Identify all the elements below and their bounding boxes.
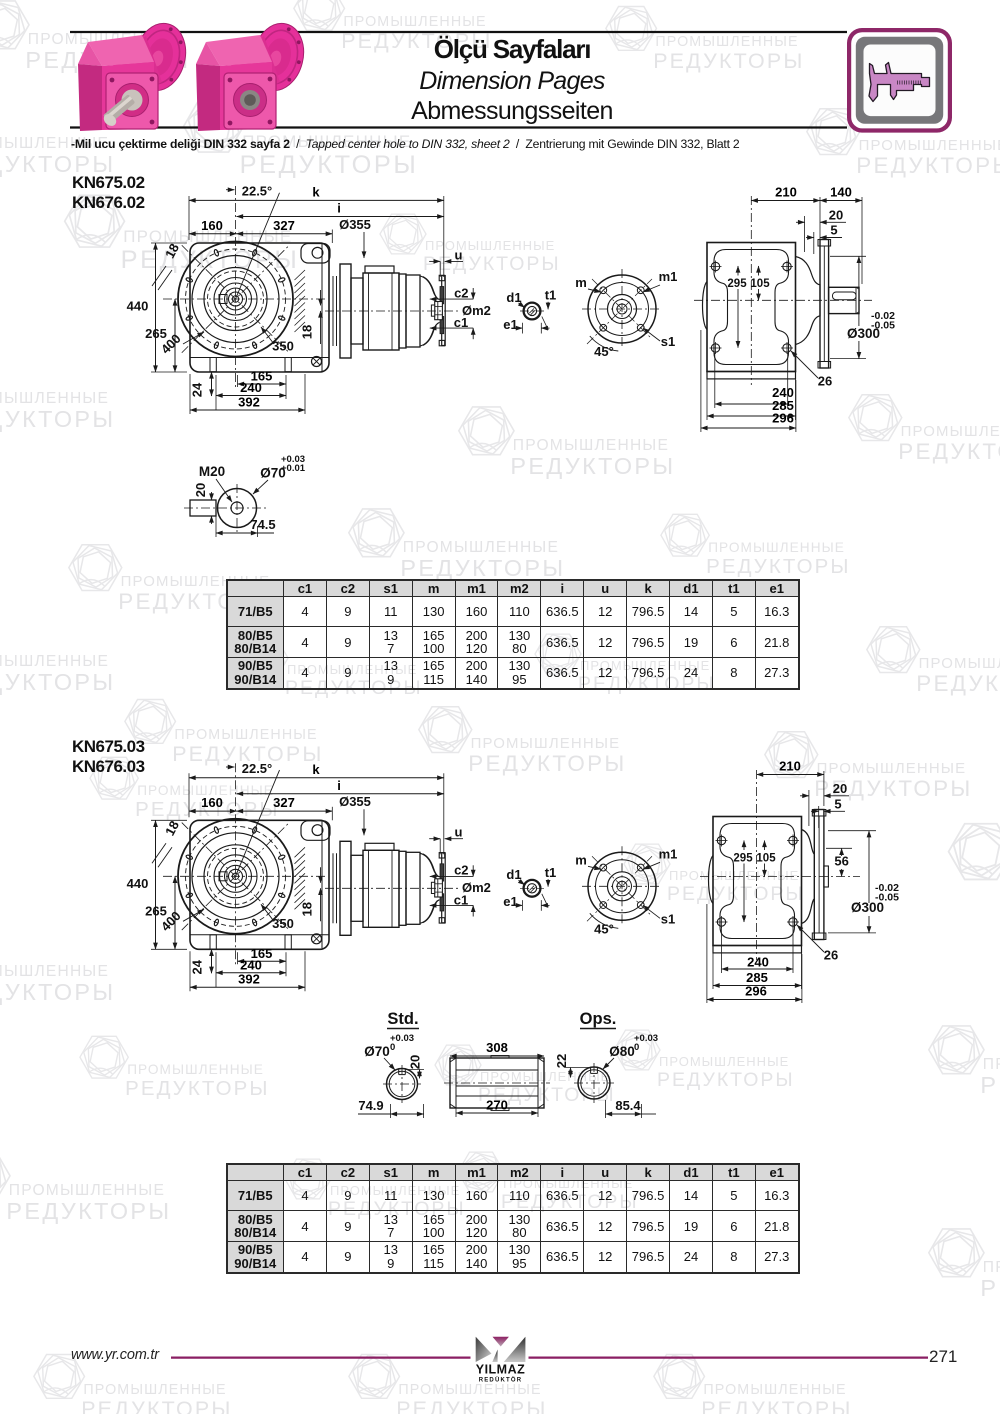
svg-text:296: 296 [745,984,767,999]
svg-text:ПРОМЫШЛЕННЫЕ: ПРОМЫШЛЕННЫЕ [403,539,559,556]
svg-text:Ops.: Ops. [580,1010,617,1028]
svg-text:m: m [575,275,587,290]
svg-text:РЕДУКТОРЫ: РЕДУКТОРЫ [980,1072,1000,1098]
svg-text:РЕДУКТОРЫ: РЕДУКТОРЫ [121,246,300,274]
svg-text:ПРОМЫШЛЕННЫЕ: ПРОМЫШЛЕННЫЕ [127,1062,264,1077]
svg-text:440: 440 [127,299,149,314]
svg-text:74.5: 74.5 [250,517,275,532]
svg-text:ПРОМЫШЛЕННЫЕ: ПРОМЫШЛЕННЫЕ [9,1182,165,1199]
svg-text:105: 105 [750,278,770,290]
svg-text:РЕДУКТОРЫ: РЕДУКТОРЫ [701,1397,852,1414]
svg-text:РЕДУКТОРЫ: РЕДУКТОРЫ [510,453,675,479]
svg-text:ПРОМЫШЛЕННЫЕ: ПРОМЫШЛЕННЫЕ [669,868,799,883]
svg-text:ПРОМЫШЛЕННЫЕ: ПРОМЫШЛЕННЫЕ [398,1382,541,1398]
svg-text:REDÜKTÖR: REDÜKTÖR [479,1377,523,1384]
svg-text:24: 24 [190,382,205,397]
svg-text:392: 392 [238,394,260,409]
svg-text:240: 240 [240,380,262,395]
svg-text:265: 265 [145,326,167,341]
svg-text:ПРОМЫШЛЕННЫЕ: ПРОМЫШЛЕННЫЕ [174,727,317,743]
svg-text:Ø355: Ø355 [339,217,371,232]
svg-text:26: 26 [824,948,838,963]
svg-text:РЕДУКТОРЫ: РЕДУКТОРЫ [396,1397,547,1414]
svg-text:295: 295 [733,852,753,864]
svg-text:56: 56 [834,853,848,868]
svg-text:РЕДУКТОРЫ: РЕДУКТОРЫ [0,979,116,1005]
svg-text:M20: M20 [199,464,225,479]
svg-text:Ø70: Ø70 [364,1044,390,1059]
svg-text:20: 20 [193,483,208,497]
svg-text:295: 295 [727,278,747,290]
svg-text:РЕДУКТОРЫ: РЕДУКТОРЫ [125,1077,270,1100]
svg-text:ПРОМЫШЛЕННЫЕ: ПРОМЫШЛЕННЫЕ [983,1259,1000,1276]
svg-text:РЕДУКТОРЫ: РЕДУКТОРЫ [898,439,1000,464]
svg-text:ПРОМЫШЛЕННЫЕ: ПРОМЫШЛЕННЫЕ [513,437,669,454]
svg-text:ПРОМЫШЛЕННЫЕ: ПРОМЫШЛЕННЫЕ [659,1054,789,1069]
svg-text:РЕДУКТОРЫ: РЕДУКТОРЫ [6,1198,171,1224]
svg-text:ПРОМЫШЛЕННЫЕ: ПРОМЫШЛЕННЫЕ [425,238,555,253]
svg-text:РЕДУКТОРЫ: РЕДУКТОРЫ [81,1397,232,1414]
svg-text:ПРОМЫШЛЕННЫЕ: ПРОМЫШЛЕННЫЕ [983,1056,1000,1073]
svg-text:ПРОМЫШЛЕННЫЕ: ПРОМЫШЛЕННЫЕ [0,390,109,407]
svg-text:ПРОМЫШЛЕННЫЕ: ПРОМЫШЛЕННЫЕ [817,760,967,777]
svg-text:20: 20 [829,207,843,222]
svg-text:m1: m1 [659,269,678,284]
svg-text:5: 5 [830,223,837,238]
svg-text:18: 18 [300,325,315,339]
svg-text:+0.01: +0.01 [281,463,306,474]
svg-text:s1: s1 [661,334,675,349]
svg-text:210: 210 [775,185,797,200]
svg-text:140: 140 [830,185,852,200]
svg-text:0: 0 [634,1042,639,1053]
svg-text:ПРОМЫШЛЕННЫЕ: ПРОМЫШЛЕННЫЕ [919,655,1000,672]
svg-text:350: 350 [272,339,294,354]
svg-text:РЕДУКТОРЫ: РЕДУКТОРЫ [667,883,805,905]
svg-text:ПРОМЫШЛЕННЫЕ: ПРОМЫШЛЕННЫЕ [471,735,621,752]
svg-text:85.4: 85.4 [615,1098,641,1113]
svg-text:c2: c2 [454,285,468,300]
svg-text:5: 5 [834,796,841,811]
svg-text:РЕДУКТОРЫ: РЕДУКТОРЫ [980,1275,1000,1301]
svg-text:РЕДУКТОРЫ: РЕДУКТОРЫ [468,751,626,776]
svg-text:20: 20 [408,1055,423,1069]
svg-text:e1: e1 [503,317,517,332]
svg-text:327: 327 [273,218,295,233]
svg-text:РЕДУКТОРЫ: РЕДУКТОРЫ [0,406,116,432]
svg-text:ПРОМЫШЛЕННЫЕ: ПРОМЫШЛЕННЫЕ [0,963,109,980]
svg-text:Std.: Std. [387,1010,418,1028]
svg-text:Ø80: Ø80 [609,1044,635,1059]
svg-text:k: k [312,185,320,200]
svg-text:ПРОМЫШЛЕННЫЕ: ПРОМЫШЛЕННЫЕ [83,1382,226,1398]
svg-text:45°: 45° [594,344,614,359]
svg-text:РЕДУКТОРЫ: РЕДУКТОРЫ [0,669,116,695]
svg-text:ПРОМЫШЛЕННЫЕ: ПРОМЫШЛЕННЫЕ [901,423,1000,440]
svg-text:270: 270 [486,1098,508,1113]
svg-text:26: 26 [818,374,832,389]
svg-text:РЕДУКТОРЫ: РЕДУКТОРЫ [916,671,1000,696]
svg-text:РЕДУКТОРЫ: РЕДУКТОРЫ [657,1069,795,1091]
svg-text:ПРОМЫШЛЕННЫЕ: ПРОМЫШЛЕННЫЕ [0,653,109,670]
svg-text:РЕДУКТОРЫ: РЕДУКТОРЫ [856,153,1000,178]
svg-text:Ø300: Ø300 [847,326,880,341]
svg-text:ПРОМЫШЛЕННЫЕ: ПРОМЫШЛЕННЫЕ [859,137,1000,154]
svg-text:240: 240 [747,955,769,970]
svg-text:Ø300: Ø300 [851,900,884,915]
svg-text:YILMAZ: YILMAZ [476,1363,526,1377]
svg-text:РЕДУКТОРЫ: РЕДУКТОРЫ [706,555,851,578]
svg-text:d1: d1 [506,290,521,305]
svg-text:i: i [337,201,341,216]
svg-text:c1: c1 [454,315,468,330]
svg-text:160: 160 [201,218,223,233]
svg-text:74.9: 74.9 [358,1098,383,1113]
svg-text:u: u [455,247,463,262]
svg-text:t1: t1 [545,288,557,303]
svg-text:0: 0 [390,1042,395,1053]
svg-text:22.5°: 22.5° [242,184,273,199]
svg-text:105: 105 [756,852,776,864]
svg-text:ПРОМЫШЛЕННЫЕ: ПРОМЫШЛЕННЫЕ [708,540,845,555]
svg-text:20: 20 [833,781,847,796]
svg-text:210: 210 [779,759,801,774]
svg-text:РЕДУКТОРЫ: РЕДУКТОРЫ [240,151,419,179]
svg-text:ПРОМЫШЛЕННЫЕ: ПРОМЫШЛЕННЫЕ [703,1382,846,1398]
svg-text:ПРОМЫШЛЕННЫЕ: ПРОМЫШЛЕННЫЕ [343,14,486,30]
svg-text:308: 308 [486,1040,508,1055]
svg-text:РЕДУКТОРЫ: РЕДУКТОРЫ [400,555,565,581]
svg-text:296: 296 [772,410,794,425]
svg-text:22: 22 [554,1054,569,1068]
